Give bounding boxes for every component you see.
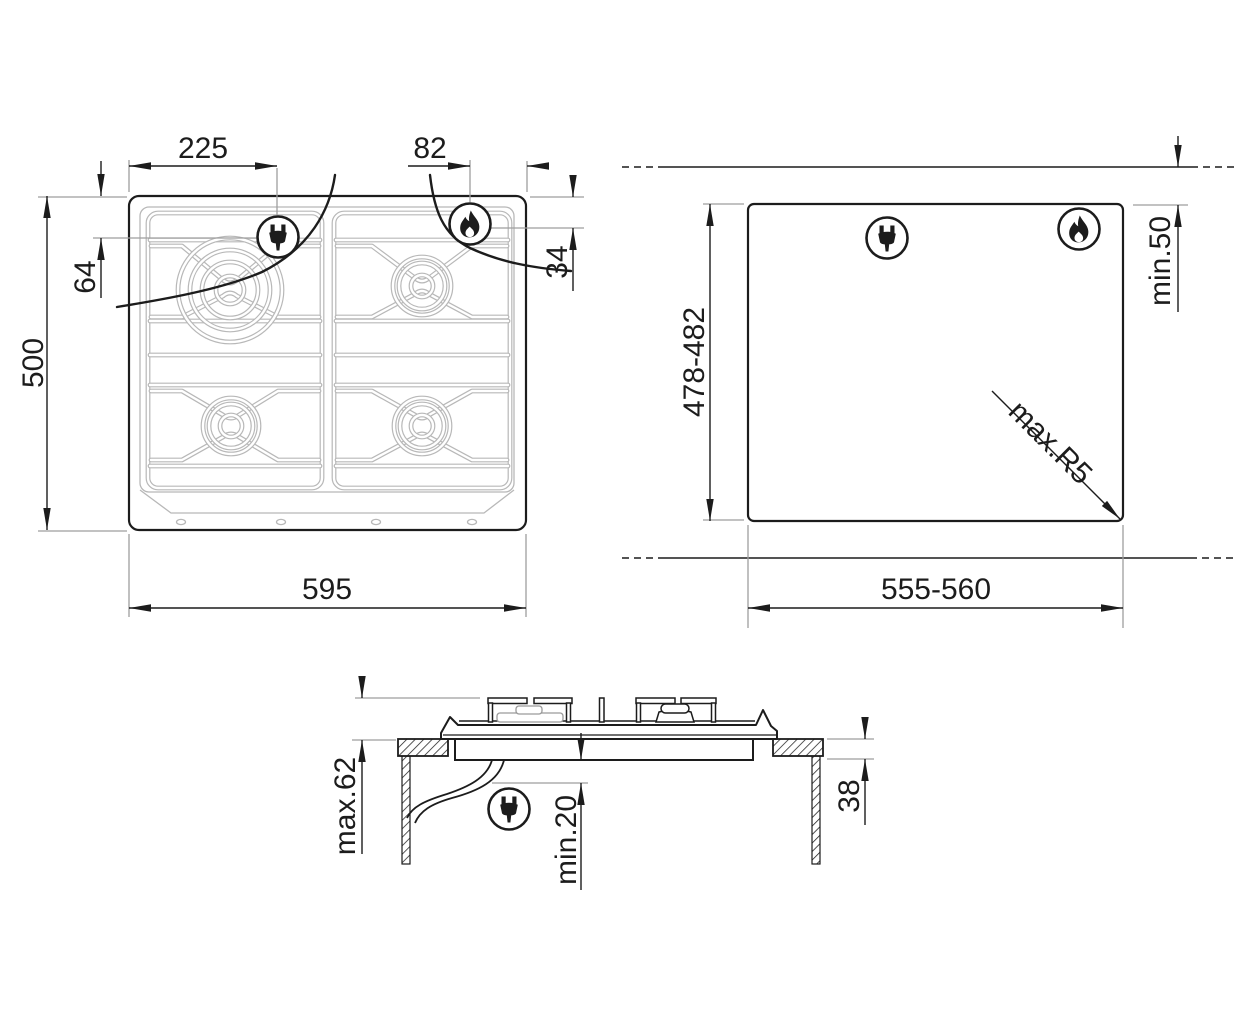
dim-cutout-depth: 478-482: [678, 307, 711, 417]
dim-gas-offset-x: 82: [413, 132, 446, 165]
dim-min-clearance-below: min.20: [550, 795, 583, 885]
gas-flame-icon: [1059, 209, 1100, 250]
worktop-cutout-view: 478-482 min.50 555-560 max.R5: [622, 136, 1236, 628]
dim-recess-depth: 38: [833, 779, 866, 812]
dim-elec-offset-y: 64: [69, 260, 102, 293]
dim-overall-depth: 500: [17, 338, 50, 388]
gas-flame-icon: [450, 204, 491, 245]
side-section-view: max.62 min.20 38: [329, 677, 874, 890]
dim-elec-offset-x: 225: [178, 132, 228, 165]
cabinet-wall-right: [812, 756, 820, 864]
dim-cutout-width: 555-560: [881, 573, 991, 606]
dim-gas-offset-y: 34: [541, 245, 574, 278]
hob-top-view: 225 82 64 34 500 595: [17, 132, 584, 617]
dim-overall-width: 595: [302, 573, 352, 606]
hob-installation-diagram: 225 82 64 34 500 595: [0, 0, 1250, 1023]
installation-diagram-page: 225 82 64 34 500 595: [0, 0, 1250, 1023]
worktop-section-right: [773, 739, 823, 756]
dim-max-height-protrusion: max.62: [329, 757, 362, 855]
power-plug-icon: [258, 217, 299, 258]
worktop-section-left: [398, 739, 448, 756]
burner-caps-section: [497, 704, 694, 722]
cabinet-wall-left: [402, 756, 410, 864]
power-plug-icon: [489, 789, 530, 830]
power-plug-icon: [867, 218, 908, 259]
dim-min-wall-clearance: min.50: [1144, 216, 1177, 306]
